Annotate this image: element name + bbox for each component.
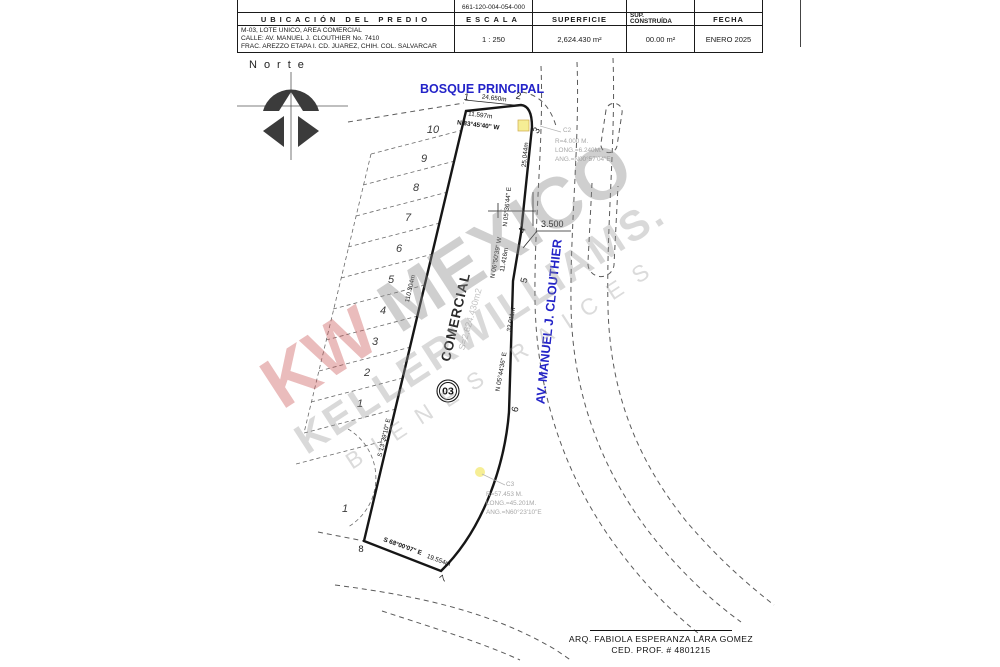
header-ubicacion: UBICACIÓN DEL PREDIO (237, 13, 455, 26)
svg-text:7: 7 (405, 212, 412, 224)
predio-description: M-03, LOTE UNICO, AREA COMERCIAL CALLE: … (237, 26, 455, 53)
svg-text:1: 1 (463, 92, 470, 104)
svg-text:1: 1 (357, 398, 363, 410)
svg-text:10: 10 (427, 124, 440, 136)
lot-number-badge: 03 (437, 380, 459, 402)
svg-text:3: 3 (531, 126, 543, 136)
svg-text:8: 8 (358, 544, 363, 555)
street-edge-top (348, 103, 464, 122)
architect-name: ARQ. FABIOLA ESPERANZA LARA GOMEZ (566, 634, 756, 645)
fecha-value: ENERO 2025 (695, 26, 763, 53)
cadastral-key: 661-120-004-054-000 (455, 0, 533, 13)
escala-value: 1 : 250 (455, 26, 533, 53)
svg-text:C3: C3 (506, 481, 515, 488)
highlight-dot (475, 467, 485, 477)
svg-text:ANG.=N00°57'04"E: ANG.=N00°57'04"E (555, 155, 611, 163)
svg-text:ANG.=N60°23'10"E: ANG.=N60°23'10"E (486, 508, 542, 516)
svg-text:6: 6 (510, 405, 522, 413)
svg-text:LONG.=6.240M.: LONG.=6.240M. (555, 147, 602, 154)
median-island-long (588, 183, 618, 277)
svg-text:2: 2 (515, 91, 522, 103)
architect-license: CED. PROF. # 4801215 (566, 645, 756, 656)
dim-left-length: 110.304m (404, 274, 417, 303)
title-block-header-row: UBICACIÓN DEL PREDIO ESCALA SUPERFICIE S… (237, 13, 763, 26)
title-block-value-row: M-03, LOTE UNICO, AREA COMERCIAL CALLE: … (237, 26, 763, 53)
elevation-label: 3.500 (541, 219, 564, 229)
svg-text:R=4.000 M.: R=4.000 M. (555, 138, 588, 145)
svg-text:4: 4 (380, 305, 386, 317)
site-plan-svg: 3.500 BOSQUE PRINCIPAL AV. MANUEL J. CLO… (0, 0, 1000, 667)
svg-text:7: 7 (438, 573, 449, 585)
c2-leader (540, 126, 561, 132)
block-number: 1 (342, 503, 348, 515)
north-arrow-icon (237, 72, 348, 160)
signature-block: ARQ. FABIOLA ESPERANZA LARA GOMEZ CED. P… (566, 630, 756, 656)
svg-text:C2: C2 (563, 127, 572, 134)
svg-text:R=57.453 M.: R=57.453 M. (486, 491, 523, 498)
header-fecha: FECHA (695, 13, 763, 26)
svg-text:5: 5 (388, 274, 395, 286)
lot-number: 03 (442, 386, 454, 398)
header-sup-construida: SUP. CONSTRUÍDA (627, 13, 695, 26)
sup-construida-value: 00.00 m² (627, 26, 695, 53)
title-block: 661-120-004-054-000 UBICACIÓN DEL PREDIO… (237, 0, 763, 53)
signature-rule (590, 630, 732, 631)
superficie-value: 2,624.430 m² (533, 26, 627, 53)
svg-text:5: 5 (519, 276, 531, 284)
highlight-square (518, 120, 529, 131)
curve-c3-data: C3 R=57.453 M. LONG.=45.201M. ANG.=N60°2… (486, 481, 542, 516)
svg-text:6: 6 (396, 243, 403, 255)
header-escala: ESCALA (455, 13, 533, 26)
svg-text:LONG.=45.201M.: LONG.=45.201M. (486, 500, 536, 507)
title-block-partial-row: 661-120-004-054-000 (237, 0, 763, 13)
svg-text:9: 9 (421, 153, 427, 165)
north-label: Norte (249, 59, 311, 71)
street-label-clouthier: AV. MANUEL J. CLOUTHIER (533, 238, 564, 404)
svg-text:3: 3 (372, 336, 379, 348)
median-island-small (601, 103, 622, 152)
svg-text:8: 8 (413, 182, 420, 194)
header-superficie: SUPERFICIE (533, 13, 627, 26)
plan-sheet: 3.500 BOSQUE PRINCIPAL AV. MANUEL J. CLO… (0, 0, 1000, 667)
svg-text:2: 2 (363, 367, 370, 379)
